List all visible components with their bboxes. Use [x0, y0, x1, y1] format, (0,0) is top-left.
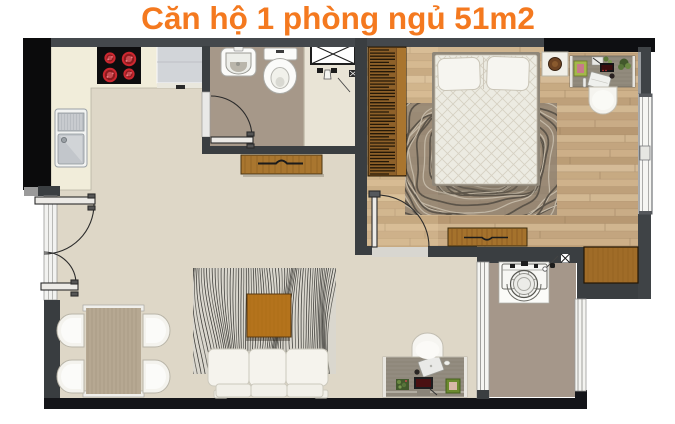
- svg-text:Căn hộ 1 phòng ngủ 51m2: Căn hộ 1 phòng ngủ 51m2: [141, 0, 535, 36]
